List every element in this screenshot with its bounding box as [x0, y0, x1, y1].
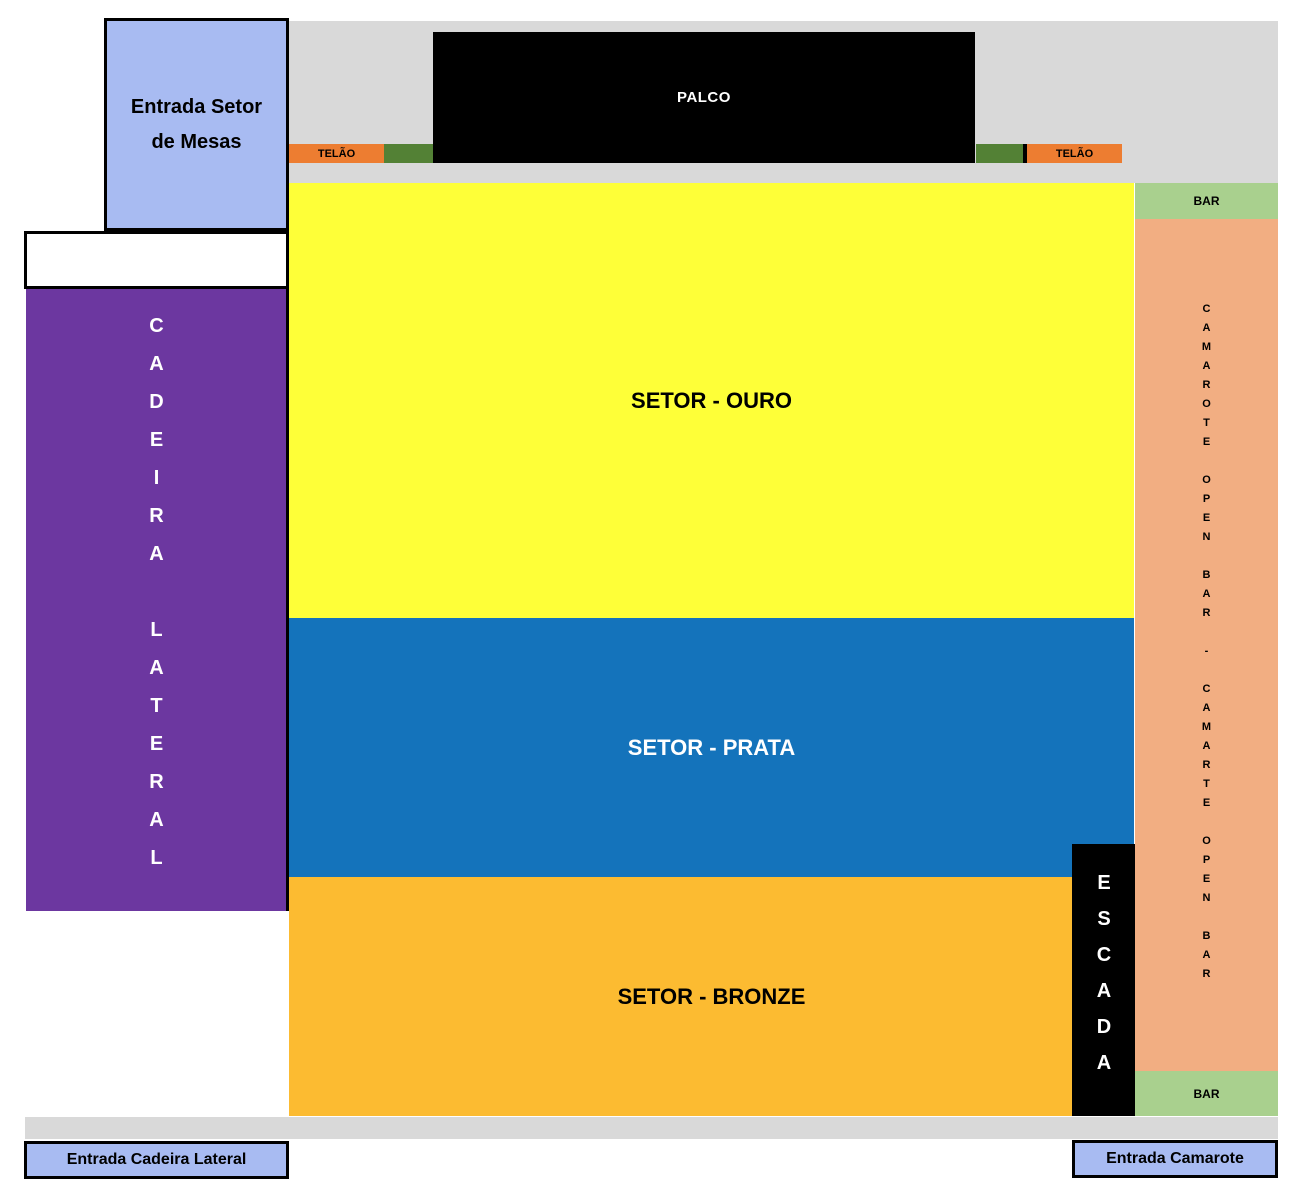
floor-area-bottom: [25, 1117, 1278, 1139]
sector-bronze-label: SETOR - BRONZE: [618, 984, 806, 1010]
entrance-camarote: Entrada Camarote: [1072, 1140, 1278, 1178]
stairs-label: ESCADA: [1092, 872, 1115, 1088]
screen-left: TELÃO: [289, 144, 384, 163]
screen-right-label: TELÃO: [1056, 148, 1093, 160]
sector-prata-label: SETOR - PRATA: [628, 735, 795, 761]
stage-label: PALCO: [677, 89, 731, 106]
screen-right: TELÃO: [1027, 144, 1122, 163]
sector-ouro-label: SETOR - OURO: [631, 388, 792, 414]
entrance-setor-de-mesas: Entrada Setor de Mesas: [104, 18, 289, 231]
venue-seating-map: PALCO TELÃO TELÃO SETOR - OURO SETOR - P…: [0, 0, 1302, 1190]
sector-cadeira-lateral-label: CADEIRA LATERAL: [145, 315, 168, 885]
stage-area: PALCO: [433, 32, 975, 163]
entrance-camarote-label: Entrada Camarote: [1106, 1150, 1244, 1168]
stairs-area: ESCADA: [1072, 844, 1135, 1116]
sector-ouro: SETOR - OURO: [289, 183, 1134, 618]
bar-top-label: BAR: [1194, 194, 1220, 208]
sector-bronze: SETOR - BRONZE: [289, 877, 1134, 1116]
sector-prata: SETOR - PRATA: [289, 618, 1134, 877]
entrance-setor-de-mesas-label: Entrada Setor de Mesas: [121, 90, 272, 160]
screen-right-green-strip: [976, 144, 1023, 163]
entrance-cadeira-lateral: Entrada Cadeira Lateral: [24, 1141, 289, 1179]
screen-left-label: TELÃO: [318, 148, 355, 160]
bar-bottom: BAR: [1135, 1071, 1278, 1116]
bar-bottom-label: BAR: [1194, 1087, 1220, 1101]
bar-top: BAR: [1135, 183, 1278, 219]
sector-camarote: CAMAROTE OPEN BAR - CAMARTE OPEN BAR: [1135, 219, 1278, 1071]
screen-left-green-strip: [384, 144, 433, 163]
sector-camarote-label: CAMAROTE OPEN BAR - CAMARTE OPEN BAR: [1201, 303, 1213, 987]
empty-box: [24, 231, 289, 289]
sector-bronze-label-area: SETOR - BRONZE: [320, 984, 1103, 1010]
sector-cadeira-lateral: CADEIRA LATERAL: [26, 289, 289, 911]
entrance-cadeira-lateral-label: Entrada Cadeira Lateral: [67, 1151, 247, 1169]
sector-prata-label-area: SETOR - PRATA: [320, 735, 1103, 761]
